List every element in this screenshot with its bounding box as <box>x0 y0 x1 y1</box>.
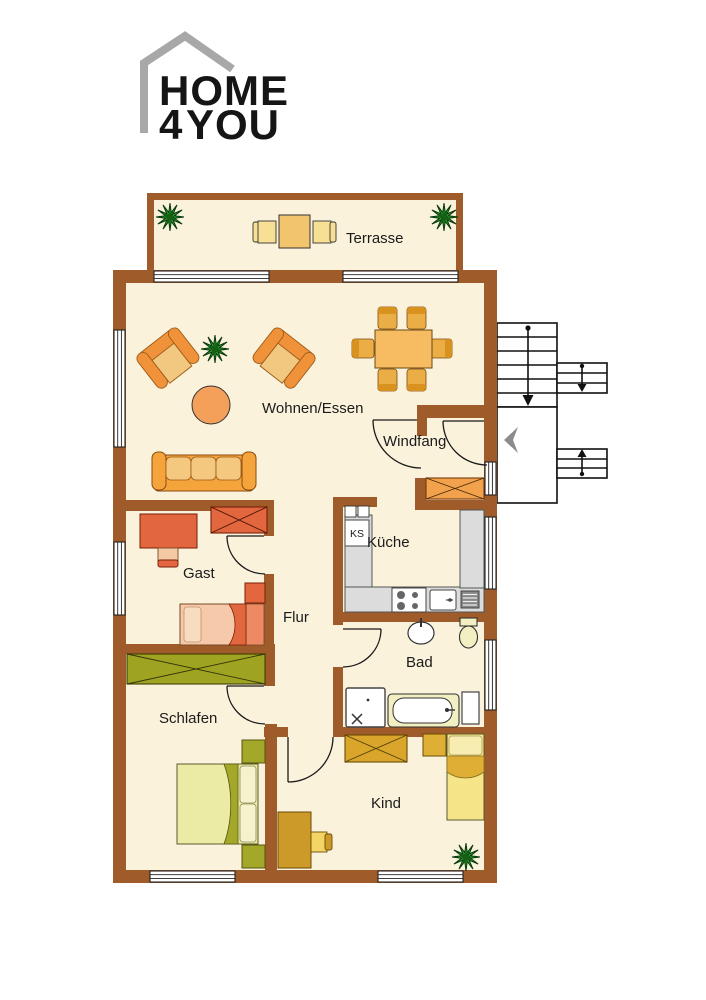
schlafen-nightstand <box>242 845 265 868</box>
terrace-chair <box>313 221 331 243</box>
fridge: KS <box>345 520 369 546</box>
window-terrace-left <box>154 271 269 282</box>
kind-chair <box>311 832 332 852</box>
room-label-kind: Kind <box>371 795 401 812</box>
schlafen-double-bed <box>177 764 258 844</box>
stove <box>392 588 426 612</box>
window-kueche-right <box>485 517 496 589</box>
schlafen-nightstand <box>242 740 265 763</box>
kitchen-sink <box>430 590 456 610</box>
fridge-label: KS <box>350 528 364 540</box>
floorplan-canvas: HOME 4 YOU <box>0 0 706 1000</box>
kind-nightstand <box>423 734 446 756</box>
bathtub <box>388 694 459 727</box>
kind-desk <box>278 812 311 868</box>
sofa <box>152 452 256 491</box>
room-label-terrasse: Terrasse <box>346 230 404 247</box>
room-label-bad: Bad <box>406 654 433 671</box>
room-label-windfang: Windfang <box>383 433 446 450</box>
gast-nightstand <box>245 583 265 603</box>
logo-accent-char: 4 <box>159 101 183 148</box>
gast-bed <box>180 604 264 645</box>
washing-machine <box>462 692 479 724</box>
terrace-table <box>279 215 310 248</box>
kitchen-counter-right <box>460 510 484 588</box>
kind-wardrobe <box>345 735 407 762</box>
room-label-kueche: Küche <box>367 534 410 551</box>
gast-wardrobe <box>211 507 267 533</box>
gast-desk <box>140 514 197 548</box>
shower <box>346 688 385 727</box>
room-label-wohnen-essen: Wohnen/Essen <box>262 400 363 417</box>
window-schlafen-bottom <box>150 871 235 882</box>
window-gast-left <box>114 542 125 615</box>
entry-door <box>485 462 496 495</box>
dining-table <box>375 330 432 368</box>
kind-bed <box>447 734 484 820</box>
stair-landing <box>497 407 557 503</box>
window-kind-bottom <box>378 871 463 882</box>
window-living-left <box>114 330 125 447</box>
terrace-chair <box>258 221 276 243</box>
window-bad-right <box>485 640 496 710</box>
toilet <box>460 618 478 648</box>
room-label-gast: Gast <box>183 565 216 582</box>
coffee-table <box>192 386 230 424</box>
schlafen-wardrobe <box>127 654 265 684</box>
windfang-wardrobe <box>426 478 484 499</box>
gast-chair <box>158 548 178 567</box>
room-label-schlafen: Schlafen <box>159 710 217 727</box>
logo-word-bottom: YOU <box>186 101 280 148</box>
drainer-grate <box>461 591 479 608</box>
window-terrace-right <box>343 271 458 282</box>
room-label-flur: Flur <box>283 609 309 626</box>
